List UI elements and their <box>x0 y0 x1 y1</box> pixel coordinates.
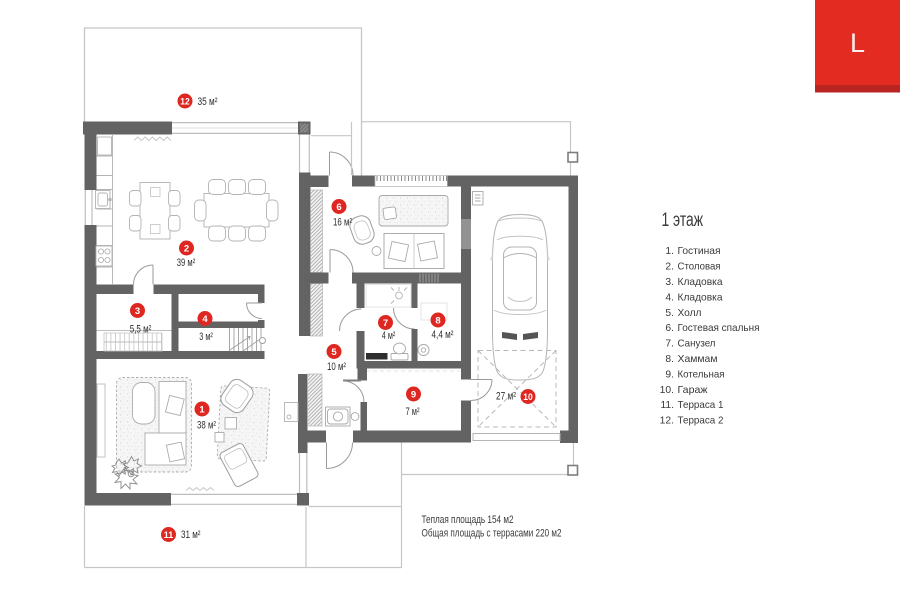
svg-text:8: 8 <box>435 315 440 326</box>
svg-text:4.: 4. <box>665 292 674 303</box>
svg-text:Кладовка: Кладовка <box>678 277 723 288</box>
svg-text:Кладовка: Кладовка <box>678 292 723 303</box>
svg-text:6.: 6. <box>665 323 674 334</box>
svg-text:11: 11 <box>164 530 174 540</box>
svg-text:10 м²: 10 м² <box>327 361 346 373</box>
svg-text:1.: 1. <box>665 246 674 257</box>
svg-text:16 м²: 16 м² <box>333 217 352 229</box>
svg-text:7 м²: 7 м² <box>406 406 420 418</box>
svg-text:11.: 11. <box>660 400 674 411</box>
svg-text:6: 6 <box>336 202 341 213</box>
svg-text:Терраса 1: Терраса 1 <box>678 400 724 411</box>
svg-text:3.: 3. <box>665 277 674 288</box>
svg-text:10.: 10. <box>660 385 674 396</box>
svg-text:31 м²: 31 м² <box>181 529 201 541</box>
svg-text:Гостевая спальня: Гостевая спальня <box>678 323 760 334</box>
svg-text:Хаммам: Хаммам <box>678 354 718 365</box>
svg-text:Котельная: Котельная <box>678 369 725 380</box>
svg-text:5: 5 <box>331 347 337 358</box>
svg-text:27 м²: 27 м² <box>496 391 516 403</box>
svg-text:2.: 2. <box>665 262 674 273</box>
svg-text:12.: 12. <box>660 416 674 427</box>
svg-text:Столовая: Столовая <box>678 262 721 273</box>
svg-text:Терраса 2: Терраса 2 <box>678 416 724 427</box>
svg-text:3 м²: 3 м² <box>199 331 213 343</box>
svg-text:7.: 7. <box>665 339 674 350</box>
svg-text:1: 1 <box>199 404 205 415</box>
svg-text:L: L <box>850 28 865 58</box>
svg-text:Гостиная: Гостиная <box>678 246 721 257</box>
svg-text:8.: 8. <box>665 354 674 365</box>
svg-text:9: 9 <box>411 389 416 400</box>
svg-text:5,5 м²: 5,5 м² <box>130 324 152 336</box>
svg-text:39 м²: 39 м² <box>177 257 196 269</box>
svg-text:38 м²: 38 м² <box>197 420 216 432</box>
svg-text:2: 2 <box>184 243 189 254</box>
svg-text:4: 4 <box>202 314 208 325</box>
svg-text:Санузел: Санузел <box>678 339 716 350</box>
svg-text:5.: 5. <box>665 308 674 319</box>
svg-text:Теплая площадь 154 м2: Теплая площадь 154 м2 <box>422 514 514 526</box>
svg-text:4 м²: 4 м² <box>382 330 396 342</box>
svg-text:10: 10 <box>523 392 533 402</box>
svg-text:1 этаж: 1 этаж <box>662 210 704 231</box>
svg-text:4,4 м²: 4,4 м² <box>432 329 454 341</box>
svg-text:35 м²: 35 м² <box>198 96 218 108</box>
svg-text:3: 3 <box>135 306 140 317</box>
svg-text:Холл: Холл <box>678 308 702 319</box>
svg-text:7: 7 <box>383 318 388 329</box>
svg-text:Гараж: Гараж <box>678 385 708 396</box>
svg-text:12: 12 <box>180 96 190 106</box>
svg-text:Общая площадь с террасами 220: Общая площадь с террасами 220 м2 <box>422 528 562 540</box>
svg-text:9.: 9. <box>665 369 674 380</box>
